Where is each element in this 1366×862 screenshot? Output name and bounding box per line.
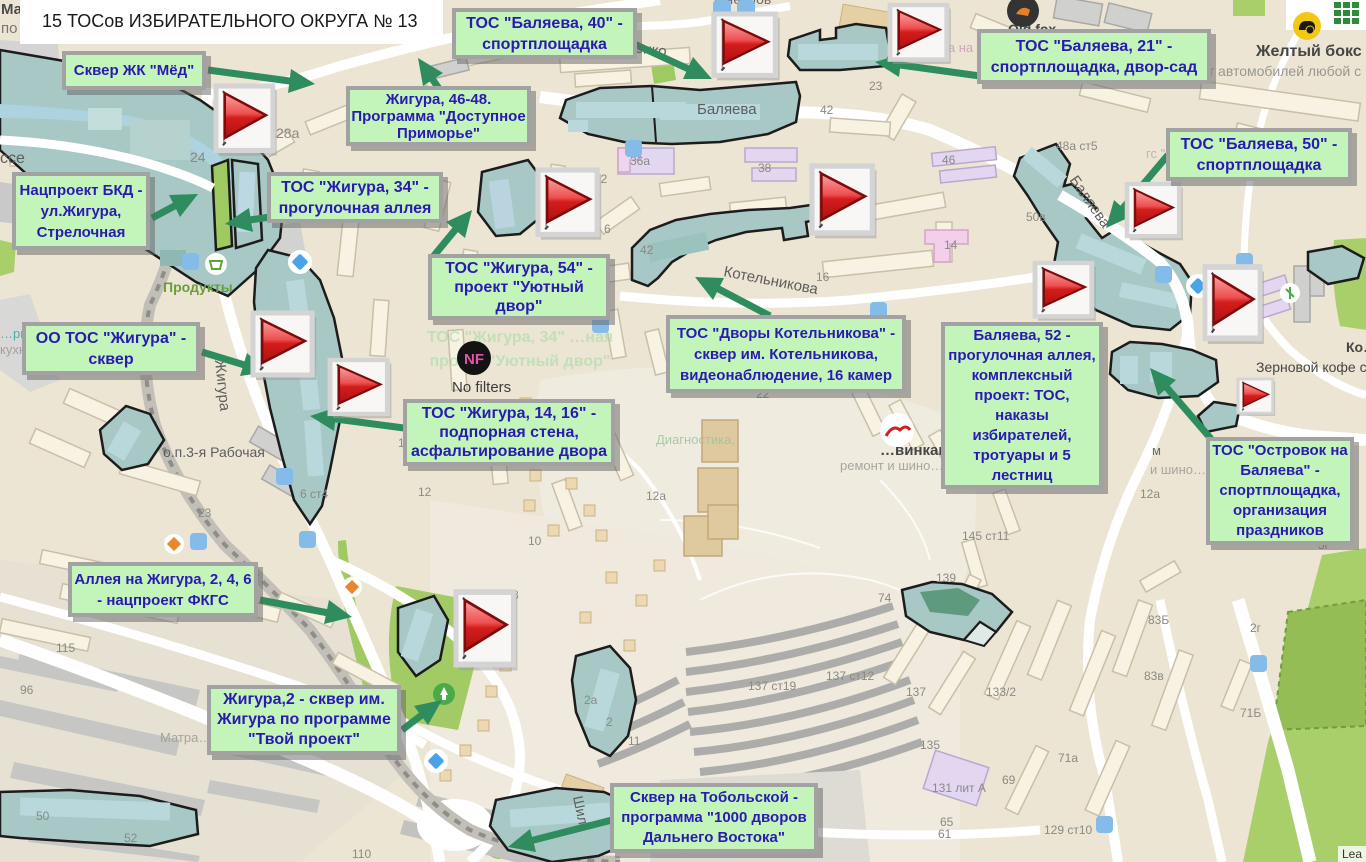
svg-text:115: 115 [56,641,75,655]
svg-text:о.п.3-я Рабочая: о.п.3-я Рабочая [163,444,265,460]
svg-text:11: 11 [628,734,641,748]
svg-text:нт автомобилей любой с: нт автомобилей любой с [1200,63,1361,79]
svg-text:48а ст5: 48а ст5 [1056,139,1098,153]
svg-text:12а: 12а [646,489,666,503]
svg-text:50в: 50в [1026,210,1046,224]
svg-text:137: 137 [906,685,926,699]
svg-text:69: 69 [1002,773,1016,787]
svg-text:Ко…: Ко… [1346,339,1366,355]
svg-text:96: 96 [20,683,34,697]
svg-text:71Б: 71Б [1240,706,1261,720]
svg-text:12: 12 [418,485,432,499]
svg-text:42: 42 [820,103,834,117]
svg-text:83Б: 83Б [1148,613,1169,627]
svg-text:Диагностика,: Диагностика, [656,432,735,447]
svg-text:135: 135 [920,738,940,752]
svg-text:133/2: 133/2 [986,685,1016,699]
svg-text:ссе: ссе [0,150,25,167]
svg-text:No filters: No filters [452,379,511,396]
svg-text:6 ст4: 6 ст4 [300,487,329,501]
svg-text:Баляева: Баляева [697,101,757,118]
svg-text:14: 14 [944,238,958,252]
svg-text:2а: 2а [584,693,598,707]
svg-text:Зерновой кофе с…: Зерновой кофе с… [1256,359,1366,375]
svg-text:110: 110 [352,847,371,861]
svg-text:12а: 12а [1140,487,1160,501]
svg-text:46: 46 [942,153,956,167]
svg-text:23: 23 [869,79,883,93]
svg-text:2: 2 [606,715,613,729]
svg-text:23: 23 [198,506,212,520]
svg-text:16: 16 [816,270,830,284]
svg-text:ТОС "Жигура, 34" …ная: ТОС "Жигура, 34" …ная [427,329,613,346]
svg-text:проект "Уютный двор": проект "Уютный двор" [430,353,611,370]
svg-text:10: 10 [528,534,542,548]
svg-text:61: 61 [938,827,952,841]
svg-text:NF: NF [464,351,484,368]
svg-text:137 ст12: 137 ст12 [826,669,875,683]
svg-text:Продукты: Продукты [163,279,233,295]
svg-text:129 ст10: 129 ст10 [1044,823,1093,837]
svg-text:38: 38 [758,161,772,175]
svg-text:71а: 71а [1058,751,1078,765]
svg-text:83в: 83в [1144,669,1164,683]
svg-text:139: 139 [936,571,956,585]
svg-text:м: м [1152,443,1161,458]
svg-text:42: 42 [640,243,654,257]
svg-text:131 лит А: 131 лит А [932,781,986,795]
svg-text:2г: 2г [1250,621,1262,635]
svg-text:6: 6 [604,222,611,236]
svg-text:74: 74 [878,591,892,605]
svg-text:52: 52 [124,831,138,845]
svg-text:Желтый бокс: Желтый бокс [1255,43,1362,60]
svg-text:24: 24 [190,149,206,165]
svg-text:137 ст19: 137 ст19 [748,679,797,693]
svg-text:28а: 28а [276,125,300,141]
svg-text:145 ст11: 145 ст11 [962,529,1010,543]
svg-text:50: 50 [36,809,50,823]
